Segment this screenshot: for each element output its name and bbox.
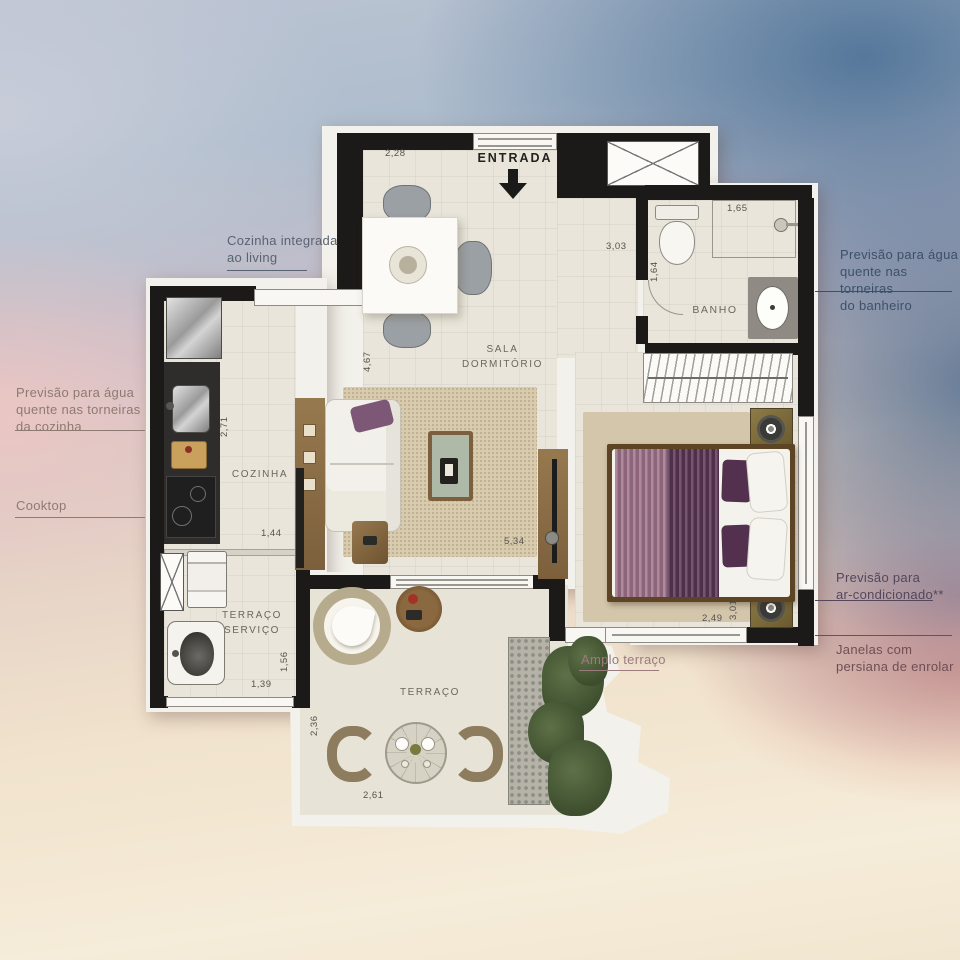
annotation-ar-condicionado: Previsão para ar-condicionado** xyxy=(836,569,956,603)
washer xyxy=(187,551,227,608)
wall-kitchen-left xyxy=(150,286,164,707)
room-label-sala-line1: SALA xyxy=(440,343,565,358)
cutting-board-dot xyxy=(185,446,192,453)
terrace-plate xyxy=(421,737,435,751)
cooktop xyxy=(166,476,216,538)
dim-shower: 1,65 xyxy=(727,203,748,214)
floor-plan-board: ENTRADA BANHO SALA DORMITÓRIO COZINHA TE… xyxy=(0,0,960,960)
fridge xyxy=(166,297,222,359)
terrace-centerpiece xyxy=(410,744,421,755)
terrace-door-line xyxy=(396,579,528,581)
dining-chair xyxy=(454,241,492,295)
wall-bath-top xyxy=(645,185,812,200)
wall-corner-bed-terrace xyxy=(549,575,565,641)
table-bowl-inner xyxy=(399,256,417,274)
annotation-line: quente nas torneiras xyxy=(840,263,960,297)
annotation-line: Cooktop xyxy=(16,497,136,514)
wall-bed-right-top xyxy=(798,348,814,416)
wardrobe-rail xyxy=(648,377,788,379)
dim-servico-w: 1,39 xyxy=(251,679,272,690)
dining-chair xyxy=(383,311,431,348)
dim-terraco-v: 2,36 xyxy=(309,704,320,736)
dim-terraco-w: 2,61 xyxy=(363,790,384,801)
toilet-tank xyxy=(655,205,699,220)
tv-knob xyxy=(545,531,559,545)
dim-servico-v: 1,56 xyxy=(279,640,290,672)
terrace-glass xyxy=(423,760,431,768)
room-label-terraco: TERRAÇO xyxy=(378,686,482,701)
floor-entry-hall xyxy=(557,198,638,358)
room-label-cozinha: COZINHA xyxy=(212,468,308,483)
entrance-arrow-icon xyxy=(508,169,518,184)
room-label-banho: BANHO xyxy=(665,303,765,318)
annotation-agua-banheiro: Previsão para água quente nas torneiras … xyxy=(840,246,960,315)
room-label-terraco-servico: TERRAÇO SERVIÇO xyxy=(202,609,302,638)
bedroom-right-window-line xyxy=(805,422,807,584)
tv xyxy=(552,459,557,563)
annotation-rule-cooktop xyxy=(15,517,145,518)
annotation-amplo-terraco: Amplo terraço xyxy=(581,651,691,668)
dim-top-living: 2,28 xyxy=(385,148,406,159)
cooktop-burner xyxy=(190,486,206,502)
annotation-line: Janelas com xyxy=(836,641,960,658)
dim-living-v: 4,67 xyxy=(362,338,373,372)
room-label-servico-line2: SERVIÇO xyxy=(202,624,302,639)
annotation-agua-cozinha: Previsão para água quente nas torneiras … xyxy=(16,384,166,435)
toilet-bowl xyxy=(659,221,695,265)
room-label-sala-line2: DORMITÓRIO xyxy=(440,358,565,373)
bed-duvet-dark xyxy=(667,449,719,597)
bed-pillow xyxy=(746,517,788,581)
wall-bed-bottom-right xyxy=(747,627,805,643)
annotation-line: Cozinha integrada xyxy=(227,232,345,249)
nightstand-lamp xyxy=(757,415,785,443)
sofa-cushion-line xyxy=(330,463,394,465)
dim-bedroom-v: 3,01 xyxy=(728,586,739,620)
dim-kitchen-v: 2,71 xyxy=(219,403,230,437)
annotation-line: Previsão para xyxy=(836,569,956,586)
wall-bed-right-bottom xyxy=(798,590,814,646)
panel-switch xyxy=(303,451,316,464)
annotation-cooktop: Cooktop xyxy=(16,497,136,514)
kitchen-faucet xyxy=(166,402,174,410)
annotation-line: Previsão para água xyxy=(16,384,166,401)
service-duct xyxy=(160,553,184,611)
annotation-line: Amplo terraço xyxy=(581,651,691,668)
remote xyxy=(363,536,377,545)
annotation-line: persiana de enrolar xyxy=(836,658,960,675)
terrace-glass xyxy=(401,760,409,768)
annotation-rule-cozinha-integrada xyxy=(227,270,307,271)
tray-item xyxy=(445,464,453,476)
bed-pillow xyxy=(745,450,788,513)
bedroom-bottom-window-line xyxy=(612,634,740,636)
dim-bedroom-w: 2,49 xyxy=(702,613,723,624)
annotation-cozinha-integrada: Cozinha integrada ao living xyxy=(227,232,345,266)
entrance-label: ENTRADA xyxy=(460,151,570,165)
annotation-line: quente nas torneiras xyxy=(16,401,166,418)
terrace-chair xyxy=(327,726,379,782)
kitchen-sink xyxy=(172,385,210,433)
terrace-tray xyxy=(406,610,422,620)
dim-hall-h: 3,03 xyxy=(606,241,627,252)
annotation-rule-ar-condicionado xyxy=(815,600,933,601)
annotation-line: do banheiro xyxy=(840,297,960,314)
candle xyxy=(408,594,418,604)
room-label-sala: SALA DORMITÓRIO xyxy=(440,343,565,372)
cooktop-burner xyxy=(172,506,192,526)
annotation-rule-janelas xyxy=(815,635,952,636)
panel-switch xyxy=(303,424,316,437)
entry-door-sill xyxy=(473,133,557,150)
annotation-line: da cozinha xyxy=(16,418,166,435)
entry-door-line xyxy=(478,145,552,147)
terrace-side-table xyxy=(396,586,442,632)
dim-living-w: 5,34 xyxy=(504,536,525,547)
open-door-leaf xyxy=(296,468,304,568)
room-label-servico-line1: TERRAÇO xyxy=(202,609,302,624)
kitchen-pass-through-counter xyxy=(254,289,364,306)
annotation-rule-amplo-terraco xyxy=(579,670,659,671)
annotation-rule-agua-cozinha xyxy=(15,430,145,431)
wall-bath-right xyxy=(798,198,814,348)
shower-arm xyxy=(786,223,798,226)
bed-duvet-light xyxy=(615,449,667,597)
entrance-arrow-head-icon xyxy=(499,183,527,199)
laundry-tank-basin xyxy=(180,632,214,676)
annotation-rule-agua-banheiro xyxy=(815,291,952,292)
wall-bath-entry-bottom xyxy=(636,316,648,344)
entry-door-line xyxy=(478,138,552,140)
shaft-x-icon xyxy=(607,141,699,186)
terrace-chair xyxy=(451,726,503,782)
terrace-plate xyxy=(395,737,409,751)
dim-hall-v: 1,64 xyxy=(649,252,660,282)
annotation-line: Previsão para água xyxy=(840,246,960,263)
dim-kitchen-w: 1,44 xyxy=(261,528,282,539)
wall-bath-entry-top xyxy=(636,198,648,280)
wall-living-left xyxy=(337,133,363,301)
laundry-faucet xyxy=(172,650,179,657)
annotation-janelas: Janelas com persiana de enrolar xyxy=(836,641,960,675)
vanity-faucet xyxy=(770,305,775,310)
annotation-line: ao living xyxy=(227,249,345,266)
service-window xyxy=(166,697,294,707)
